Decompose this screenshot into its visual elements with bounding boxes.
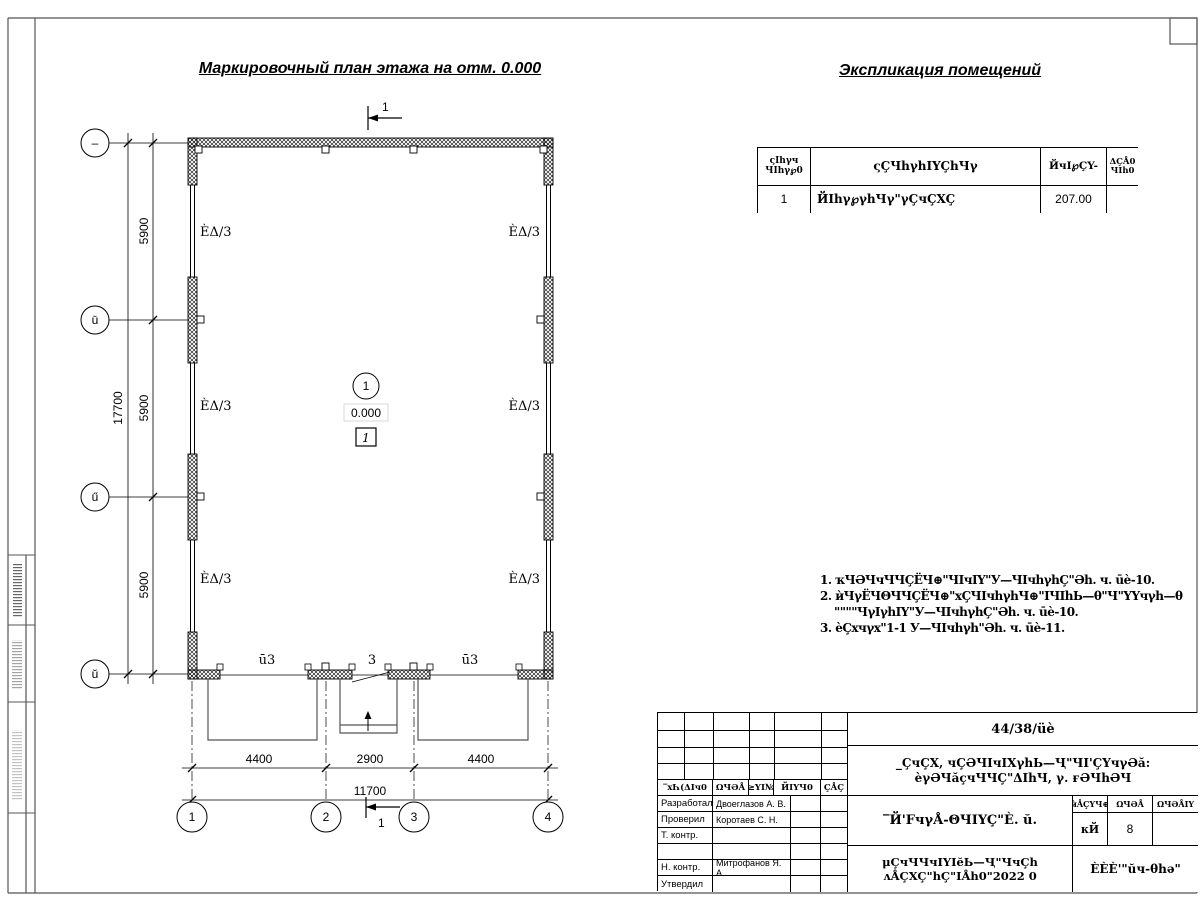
role-label: Утвердил	[658, 876, 713, 892]
role-label	[658, 844, 713, 860]
axis-bottom-3: 3	[411, 810, 418, 824]
doc-type: μÇчЧЧчIYIĕЬ—Ҷ"ЧчÇh ʌÅÇXÇ"hÇ"IÅh0"2022 0	[848, 846, 1073, 892]
margin-stamp-text	[12, 563, 22, 800]
section-arrow-icon	[366, 804, 376, 811]
panel-label: ÈΔ/3	[200, 571, 232, 587]
role-date	[821, 876, 848, 892]
dim-left-2: 5900	[137, 394, 151, 421]
panel-label: ÈΔ/3	[508, 398, 540, 414]
porch-right	[418, 679, 528, 740]
room-marker: 1 0.000 1	[344, 373, 388, 446]
dim-left-3: 5900	[137, 571, 151, 598]
title-block: ‾xҺ(ΔIч0 ΩЧӘÅ ≥YI№ ЙIYЧ0 ÇÅÇ Разработал …	[657, 712, 1197, 891]
role-signature	[791, 796, 821, 812]
panel-label: ÈΔ/3	[508, 224, 540, 240]
role-name	[713, 844, 791, 860]
stage-value: кЙ	[1073, 813, 1108, 846]
doc-type-line: μÇчЧЧчIYIĕЬ—Ҷ"ЧчÇh	[882, 855, 1038, 869]
explication-header-num: ςIhγч ЧIhγ℘0	[758, 148, 811, 186]
room-category: 1	[362, 431, 370, 445]
dim-bottom-2: 2900	[357, 752, 384, 766]
role-date	[821, 796, 848, 812]
porch-left	[208, 679, 317, 740]
role-name	[713, 828, 791, 844]
section-arrow-icon	[368, 115, 378, 122]
axis-bottom-2: 2	[323, 810, 330, 824]
role-date	[821, 844, 848, 860]
porches	[208, 679, 528, 740]
sheet-value: 8	[1108, 813, 1153, 846]
explication-header-area: ЙчI℘ÇY-	[1041, 148, 1107, 186]
room-number: 1	[363, 379, 370, 393]
explication-table: ςIhγч ЧIhγ℘0 ςÇЧhγhIYÇhЧγ ЙчI℘ÇY- ΔÇÅ0 Ч…	[757, 147, 1138, 213]
role-date	[821, 828, 848, 844]
project-line: ѐγӘЧӑçчЧЧÇ"ΔIhЧ, γ. ғӘЧhӘЧ	[915, 771, 1132, 786]
explication-header-name: ςÇЧhγhIYÇhЧγ	[811, 148, 1041, 186]
door-label: 3	[368, 653, 376, 668]
role-name: Двоеглазов А. В.	[713, 796, 791, 812]
tb-header-kol: ΩЧӘÅ	[713, 780, 749, 796]
stage-header: ѝÅÇYЧ⊕	[1073, 796, 1108, 813]
section-label-top: 1	[382, 100, 389, 114]
dim-bottom-3: 4400	[468, 752, 495, 766]
notes-block: 1. ҡЧӘЧчЧЧÇЁЧ⊕"ЧIчIY"У—ЧIчhγhÇ"Әh. ч. ūè…	[820, 572, 1100, 636]
panel-label: ÈΔ/3	[200, 398, 232, 414]
table-row-area: 207.00	[1041, 186, 1107, 213]
tb-header-doc: ЙIYЧ0	[774, 780, 821, 796]
header-line: ЧIh0	[1111, 167, 1135, 176]
tb-header-data: ÇÅÇ	[821, 780, 848, 796]
room-elevation: 0.000	[351, 406, 381, 420]
role-label: Разработал	[658, 796, 713, 812]
dim-bottom-1: 4400	[246, 752, 273, 766]
role-date	[821, 812, 848, 828]
panel-label: ÈΔ/3	[508, 571, 540, 587]
company-name: ÈÈÈ'"ŭч-θhә"	[1073, 846, 1198, 892]
note-line: 3. ѐÇxчγx"1-1 У—ЧIчhγh"Әh. ч. ūè-11.	[820, 620, 1100, 636]
doc-type-line: ʌÅÇXÇ"hÇ"IÅh0"2022 0	[883, 869, 1037, 883]
project-line: _ÇчÇX, чÇӘЧIчIXγhЬ—Ҷ"ЧI'ÇYчγӘӑ:	[896, 756, 1150, 771]
axis-left-3: ű	[92, 490, 99, 504]
note-line: """"ЧγIγhIY"У—ЧIчhγhÇ"Әh. ч. ūè-10.	[834, 604, 1100, 620]
dimension-texts: 17700 5900 5900 5900 4400 2900 4400 1170…	[111, 217, 495, 798]
object-name: ‾Й'FчγÅ-ΘЧIYÇ"È. ŭ.	[848, 796, 1073, 846]
header-line: ЧIhγ℘0	[765, 167, 802, 176]
table-row-num: 1	[758, 186, 811, 213]
axis-left-4: ŭ	[92, 667, 99, 681]
tb-header-izm: ‾xҺ(ΔIч0	[658, 780, 713, 796]
sheet-header: ΩЧӘÅ	[1108, 796, 1153, 813]
tb-header-list: ≥YI№	[749, 780, 774, 796]
sheets-header: ΩЧӘÅIY	[1153, 796, 1198, 813]
role-name: Митрофанов Я. А.	[713, 860, 791, 876]
role-signature	[791, 876, 821, 892]
role-name	[713, 876, 791, 892]
explication-header-note: ΔÇÅ0 ЧIh0	[1107, 148, 1138, 186]
table-row-note	[1107, 186, 1138, 213]
axis-lines	[109, 143, 548, 800]
dim-total-left: 17700	[111, 391, 125, 425]
role-label: Т. контр.	[658, 828, 713, 844]
door-label: ū3	[259, 653, 276, 668]
axis-left-2: ū	[92, 313, 99, 327]
sheets-value	[1153, 813, 1198, 846]
axis-bottom-4: 4	[545, 810, 552, 824]
project-name: _ÇчÇX, чÇӘЧIчIXγhЬ—Ҷ"ЧI'ÇYчγӘӑ: ѐγӘЧӑçчЧ…	[848, 746, 1198, 796]
role-signature	[791, 828, 821, 844]
ramp-arrow-icon	[365, 711, 372, 719]
panel-label: ÈΔ/3	[200, 224, 232, 240]
role-date	[821, 860, 848, 876]
note-line: 1. ҡЧӘЧчЧЧÇЁЧ⊕"ЧIчIY"У—ЧIчhγhÇ"Әh. ч. ūè…	[820, 572, 1100, 588]
dim-total-bottom: 11700	[354, 784, 387, 798]
role-label: Н. контр.	[658, 860, 713, 876]
doc-number: 44/38/üè	[848, 713, 1198, 746]
door-label: ū3	[462, 653, 479, 668]
door-leaf	[352, 672, 390, 682]
dim-left-1: 5900	[137, 217, 151, 244]
format-stamp-box	[1170, 18, 1197, 44]
section-label-bottom: 1	[378, 816, 385, 830]
role-name: Коротаев С. Н.	[713, 812, 791, 828]
note-line: 2. ѝЧγЁЧΘЧЧÇЁЧ⊕"xÇЧIчhγhЧ⊕"IЧIhЬ—θ"Ч"YYч…	[820, 588, 1100, 604]
table-row-name: ЙIhγ℘γhЧγ"γÇчÇXÇ	[811, 186, 1041, 213]
role-signature	[791, 844, 821, 860]
role-signature	[791, 812, 821, 828]
role-signature	[791, 860, 821, 876]
axis-left-1: –	[92, 136, 99, 150]
role-label: Проверил	[658, 812, 713, 828]
axis-labels: – ū ű ŭ 1 2 3 4	[92, 136, 552, 824]
axis-bottom-1: 1	[189, 810, 196, 824]
